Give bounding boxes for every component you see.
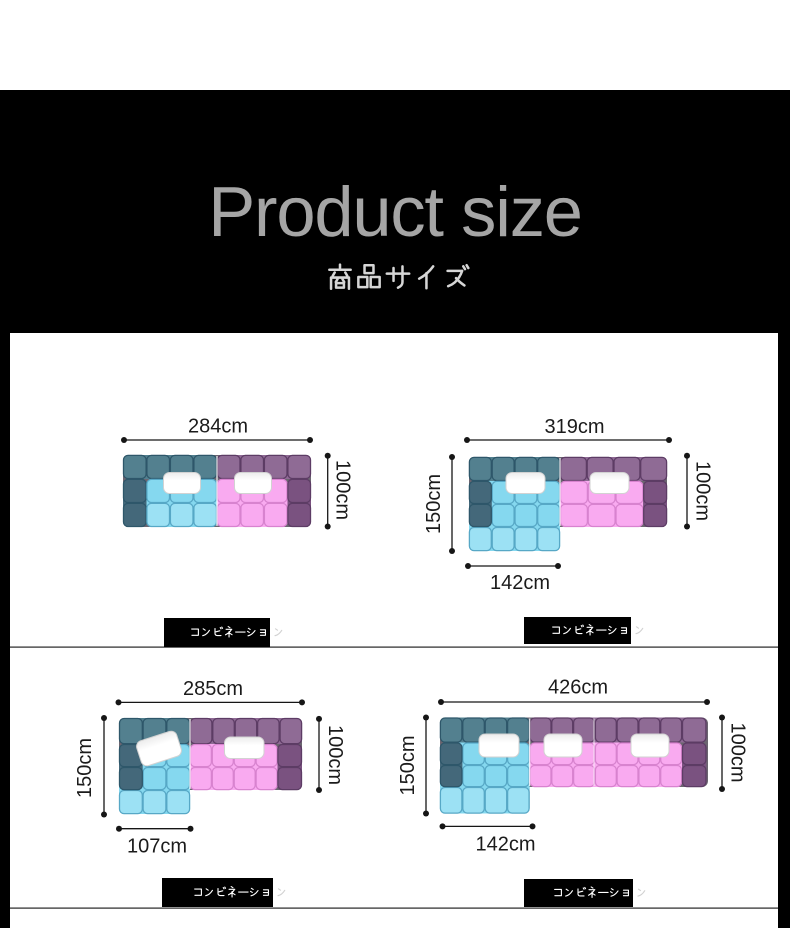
svg-text:142cm: 142cm (490, 572, 550, 594)
svg-text:Product size: Product size (208, 172, 582, 251)
svg-text:100cm: 100cm (324, 725, 346, 785)
svg-text:150cm: 150cm (423, 474, 445, 534)
svg-text:285cm: 285cm (183, 678, 243, 700)
svg-text:142cm: 142cm (475, 834, 535, 856)
svg-text:100cm: 100cm (727, 722, 749, 782)
svg-text:100cm: 100cm (692, 461, 714, 521)
svg-text:284cm: 284cm (188, 416, 248, 438)
svg-text:150cm: 150cm (397, 735, 419, 795)
svg-text:150cm: 150cm (74, 738, 96, 798)
svg-text:319cm: 319cm (544, 416, 604, 438)
svg-text:426cm: 426cm (548, 677, 608, 699)
svg-text:100cm: 100cm (332, 460, 354, 520)
svg-text:107cm: 107cm (127, 836, 187, 858)
